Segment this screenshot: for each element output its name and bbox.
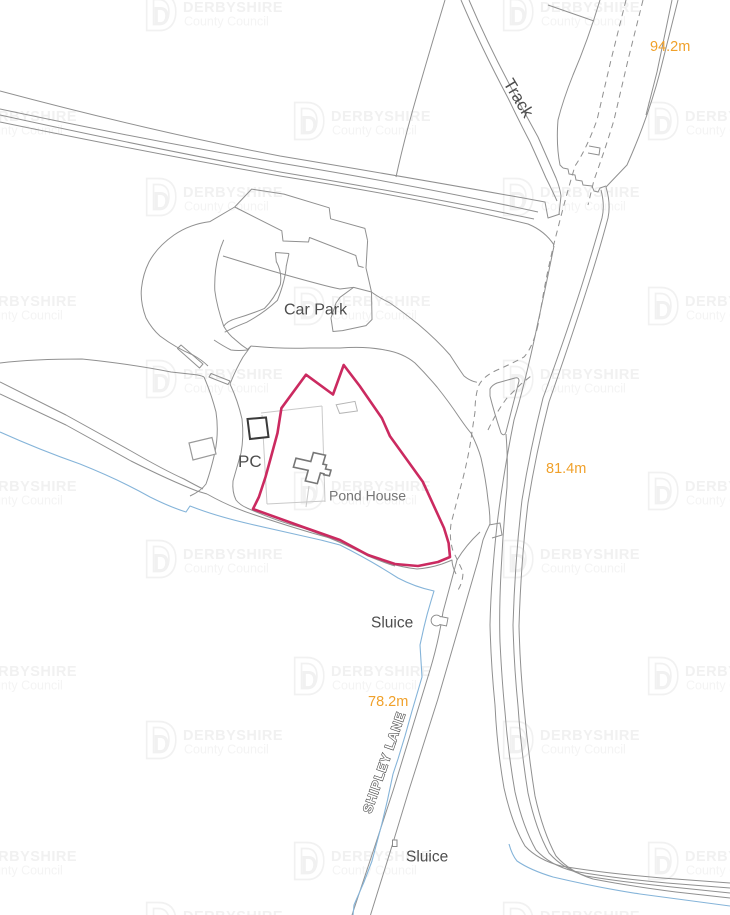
svg-text:Pond House: Pond House [329, 488, 406, 504]
svg-text:94.2m: 94.2m [650, 39, 690, 55]
svg-text:Sluice: Sluice [371, 615, 413, 632]
svg-text:PC: PC [238, 452, 262, 471]
svg-text:78.2m: 78.2m [368, 694, 408, 710]
svg-text:Car Park: Car Park [284, 302, 348, 319]
svg-text:81.4m: 81.4m [546, 461, 586, 477]
svg-text:Sluice: Sluice [406, 849, 448, 866]
